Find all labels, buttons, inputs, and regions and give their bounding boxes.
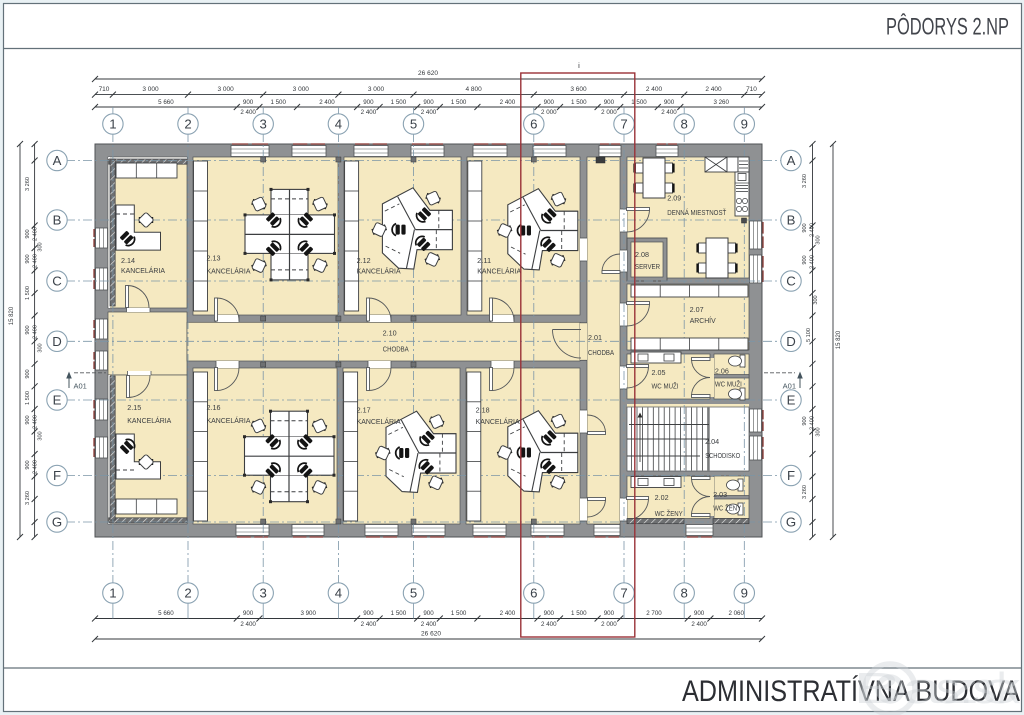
svg-text:2 400: 2 400 [33, 415, 39, 429]
svg-text:300: 300 [38, 242, 44, 251]
svg-text:2.11: 2.11 [477, 258, 491, 265]
svg-text:900: 900 [604, 99, 615, 106]
svg-text:KANCELÁRIA: KANCELÁRIA [476, 417, 520, 426]
svg-text:5 660: 5 660 [158, 99, 174, 106]
svg-text:2 400: 2 400 [500, 99, 516, 106]
svg-text:2.05: 2.05 [652, 370, 666, 377]
svg-text:2 400: 2 400 [661, 109, 677, 116]
svg-text:2 400: 2 400 [240, 109, 256, 116]
svg-text:2 400: 2 400 [810, 223, 816, 237]
svg-text:3 600: 3 600 [570, 86, 587, 93]
svg-text:1 500: 1 500 [25, 391, 31, 405]
svg-text:900: 900 [243, 99, 254, 106]
svg-text:2 400: 2 400 [421, 621, 437, 628]
svg-text:KANCELÁRIA: KANCELÁRIA [121, 266, 165, 275]
svg-text:3 260: 3 260 [25, 177, 31, 191]
svg-text:2 000: 2 000 [601, 621, 617, 628]
svg-text:E: E [53, 393, 62, 408]
svg-text:ARCHÍV: ARCHÍV [690, 316, 716, 325]
svg-text:900: 900 [363, 99, 374, 106]
svg-text:1 500: 1 500 [571, 99, 587, 106]
svg-text:2.06: 2.06 [715, 368, 729, 375]
svg-text:A01: A01 [74, 382, 87, 391]
svg-text:2.12: 2.12 [357, 258, 371, 265]
svg-text:KANCELÁRIA: KANCELÁRIA [477, 267, 521, 276]
svg-text:PÔDORYS 2.NP: PÔDORYS 2.NP [886, 13, 1009, 41]
svg-text:2 700: 2 700 [646, 610, 662, 617]
svg-text:2 400: 2 400 [500, 610, 516, 617]
svg-text:D: D [52, 334, 62, 349]
svg-text:900: 900 [363, 610, 374, 617]
svg-text:2 400: 2 400 [361, 109, 377, 116]
svg-text:F: F [53, 468, 61, 483]
svg-text:900: 900 [423, 610, 434, 617]
svg-text:SERVER: SERVER [635, 262, 660, 271]
svg-text:710: 710 [99, 86, 110, 93]
svg-text:900: 900 [802, 416, 808, 425]
svg-text:900: 900 [802, 255, 808, 264]
svg-text:300: 300 [816, 427, 822, 436]
svg-text:2 400: 2 400 [541, 621, 557, 628]
svg-text:900: 900 [544, 610, 555, 617]
svg-text:1 500: 1 500 [25, 286, 31, 300]
svg-text:7: 7 [620, 117, 627, 132]
svg-text:900: 900 [694, 610, 705, 617]
svg-text:2 000: 2 000 [541, 109, 557, 116]
svg-text:2 400: 2 400 [33, 325, 39, 339]
svg-text:26 620: 26 620 [421, 631, 441, 638]
svg-text:2 400: 2 400 [705, 86, 722, 93]
svg-text:D: D [786, 334, 796, 349]
svg-text:26 620: 26 620 [418, 70, 438, 77]
svg-text:2 400: 2 400 [319, 99, 335, 106]
svg-text:3 000: 3 000 [368, 86, 385, 93]
svg-text:E: E [787, 393, 796, 408]
svg-text:A: A [787, 153, 796, 168]
svg-text:1: 1 [109, 117, 116, 132]
svg-text:4 800: 4 800 [465, 86, 482, 93]
svg-text:4: 4 [335, 117, 342, 132]
svg-text:5 660: 5 660 [158, 610, 174, 617]
svg-text:C: C [52, 274, 62, 289]
svg-text:2 400: 2 400 [240, 621, 256, 628]
svg-text:300: 300 [813, 295, 819, 304]
svg-text:CHODBA: CHODBA [588, 348, 614, 357]
svg-text:2 000: 2 000 [601, 109, 617, 116]
svg-text:2.14: 2.14 [121, 258, 135, 265]
svg-text:2.08: 2.08 [635, 252, 649, 259]
svg-text:900: 900 [243, 610, 254, 617]
svg-text:900: 900 [25, 460, 31, 469]
svg-text:900: 900 [544, 99, 555, 106]
svg-text:2.09: 2.09 [667, 196, 681, 203]
svg-text:8: 8 [681, 117, 688, 132]
svg-text:2 400: 2 400 [421, 109, 437, 116]
svg-text:6: 6 [530, 117, 537, 132]
svg-text:3 260: 3 260 [802, 485, 808, 499]
svg-text:9: 9 [741, 586, 748, 601]
svg-text:3 260: 3 260 [802, 174, 808, 188]
svg-text:900: 900 [25, 254, 31, 263]
svg-text:2 400: 2 400 [33, 254, 39, 268]
svg-text:15 820: 15 820 [9, 306, 15, 325]
svg-text:2.03: 2.03 [713, 492, 727, 499]
svg-text:3 000: 3 000 [293, 86, 310, 93]
svg-text:300: 300 [816, 235, 822, 244]
svg-text:900: 900 [25, 415, 31, 424]
svg-text:WC ŽENY: WC ŽENY [713, 504, 741, 513]
svg-text:B: B [787, 213, 796, 228]
svg-text:900: 900 [664, 99, 675, 106]
svg-text:KANCELÁRIA: KANCELÁRIA [127, 416, 171, 425]
svg-text:KANCELÁRIA: KANCELÁRIA [357, 267, 401, 276]
svg-text:DENNÁ MIESTNOSŤ: DENNÁ MIESTNOSŤ [667, 208, 726, 217]
svg-text:2.18: 2.18 [476, 408, 490, 415]
svg-text:3 000: 3 000 [217, 86, 234, 93]
svg-text:2.02: 2.02 [655, 495, 669, 502]
svg-text:SCHODISKO: SCHODISKO [705, 451, 740, 460]
svg-text:2 400: 2 400 [33, 460, 39, 474]
svg-text:2.01: 2.01 [588, 335, 602, 342]
svg-text:900: 900 [423, 99, 434, 106]
svg-text:4: 4 [335, 586, 342, 601]
svg-text:900: 900 [604, 610, 615, 617]
svg-text:1 500: 1 500 [270, 99, 286, 106]
svg-text:3: 3 [260, 117, 267, 132]
svg-text:3: 3 [260, 586, 267, 601]
svg-text:2.15: 2.15 [127, 405, 141, 412]
svg-text:2.16: 2.16 [207, 405, 221, 412]
svg-text:2 060: 2 060 [728, 610, 744, 617]
svg-text:5: 5 [410, 586, 417, 601]
svg-text:2 400: 2 400 [691, 621, 707, 628]
svg-text:2: 2 [184, 117, 191, 132]
svg-text:2: 2 [184, 586, 191, 601]
svg-text:KANCELÁRIA: KANCELÁRIA [207, 416, 251, 425]
svg-text:WC MUŽI: WC MUŽI [715, 379, 742, 388]
svg-text:G: G [52, 515, 62, 530]
svg-text:s.sk: s.sk [936, 664, 1021, 713]
svg-text:1 500: 1 500 [571, 610, 587, 617]
svg-text:A: A [53, 153, 62, 168]
svg-text:9: 9 [741, 117, 748, 132]
svg-text:900: 900 [25, 369, 31, 378]
svg-text:2.07: 2.07 [690, 307, 704, 314]
svg-text:1 500: 1 500 [391, 610, 407, 617]
svg-text:WC ŽENY: WC ŽENY [655, 509, 683, 518]
svg-text:B: B [53, 213, 62, 228]
svg-text:3 000: 3 000 [142, 86, 159, 93]
svg-text:2.04: 2.04 [705, 439, 719, 446]
svg-text:7: 7 [620, 586, 627, 601]
svg-text:F: F [787, 468, 795, 483]
svg-text:900: 900 [802, 223, 808, 232]
svg-text:KANCELÁRIA: KANCELÁRIA [357, 417, 401, 426]
svg-text:2.13: 2.13 [207, 256, 221, 263]
svg-text:A01: A01 [783, 382, 796, 391]
svg-text:2 400: 2 400 [646, 86, 663, 93]
svg-text:6: 6 [530, 586, 537, 601]
svg-text:2 400: 2 400 [33, 227, 39, 241]
svg-text:C: C [786, 274, 796, 289]
svg-text:3 260: 3 260 [25, 491, 31, 505]
svg-text:1 500: 1 500 [451, 610, 467, 617]
svg-text:900: 900 [25, 229, 31, 238]
svg-text:2.10: 2.10 [383, 331, 397, 338]
svg-text:3 900: 3 900 [300, 610, 316, 617]
svg-text:CHODBA: CHODBA [383, 345, 409, 354]
svg-text:1 500: 1 500 [451, 99, 467, 106]
svg-text:2 400: 2 400 [810, 255, 816, 269]
svg-text:8: 8 [681, 586, 688, 601]
svg-text:900: 900 [25, 325, 31, 334]
svg-text:2.17: 2.17 [357, 408, 371, 415]
svg-text:2 400: 2 400 [361, 621, 377, 628]
svg-text:5 100: 5 100 [806, 328, 812, 342]
svg-text:3 260: 3 260 [713, 99, 729, 106]
svg-text:710: 710 [746, 86, 757, 93]
svg-text:KANCELÁRIA: KANCELÁRIA [207, 267, 251, 276]
svg-text:300: 300 [38, 343, 44, 352]
svg-text:5: 5 [410, 117, 417, 132]
svg-text:G: G [786, 515, 796, 530]
svg-text:1 500: 1 500 [391, 99, 407, 106]
svg-text:15 820: 15 820 [836, 330, 842, 349]
svg-text:WC MUŽI: WC MUŽI [652, 382, 679, 391]
svg-text:1 500: 1 500 [631, 99, 647, 106]
svg-text:1: 1 [109, 586, 116, 601]
svg-text:300: 300 [38, 431, 44, 440]
